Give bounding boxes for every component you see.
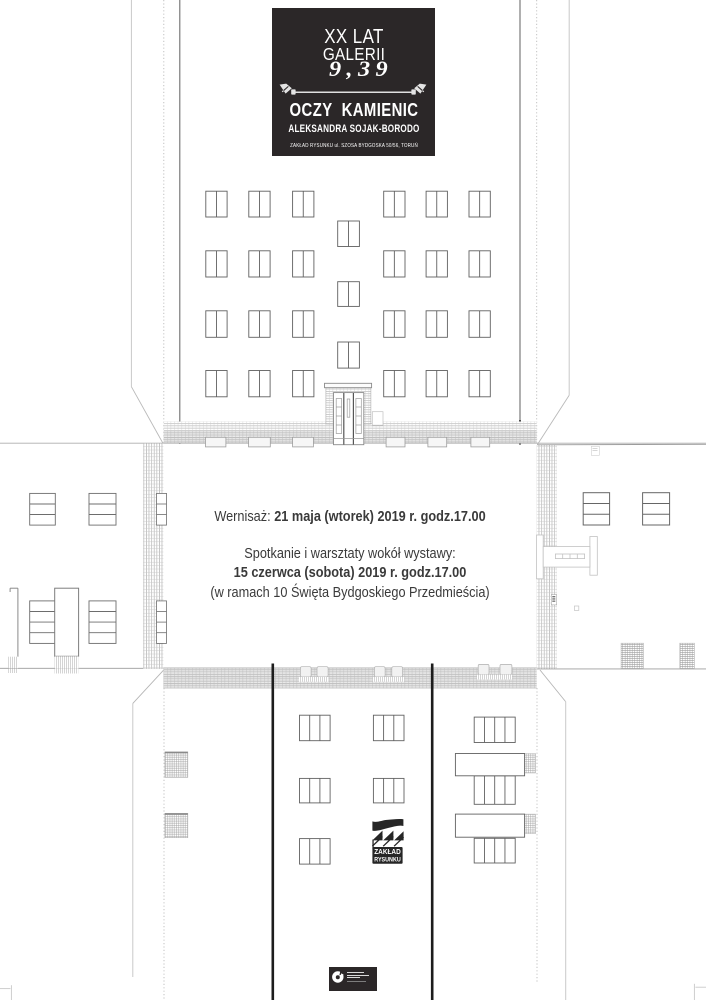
svg-text:RYSUNKU: RYSUNKU <box>374 856 401 863</box>
svg-text:ZAKŁAD: ZAKŁAD <box>374 847 401 856</box>
